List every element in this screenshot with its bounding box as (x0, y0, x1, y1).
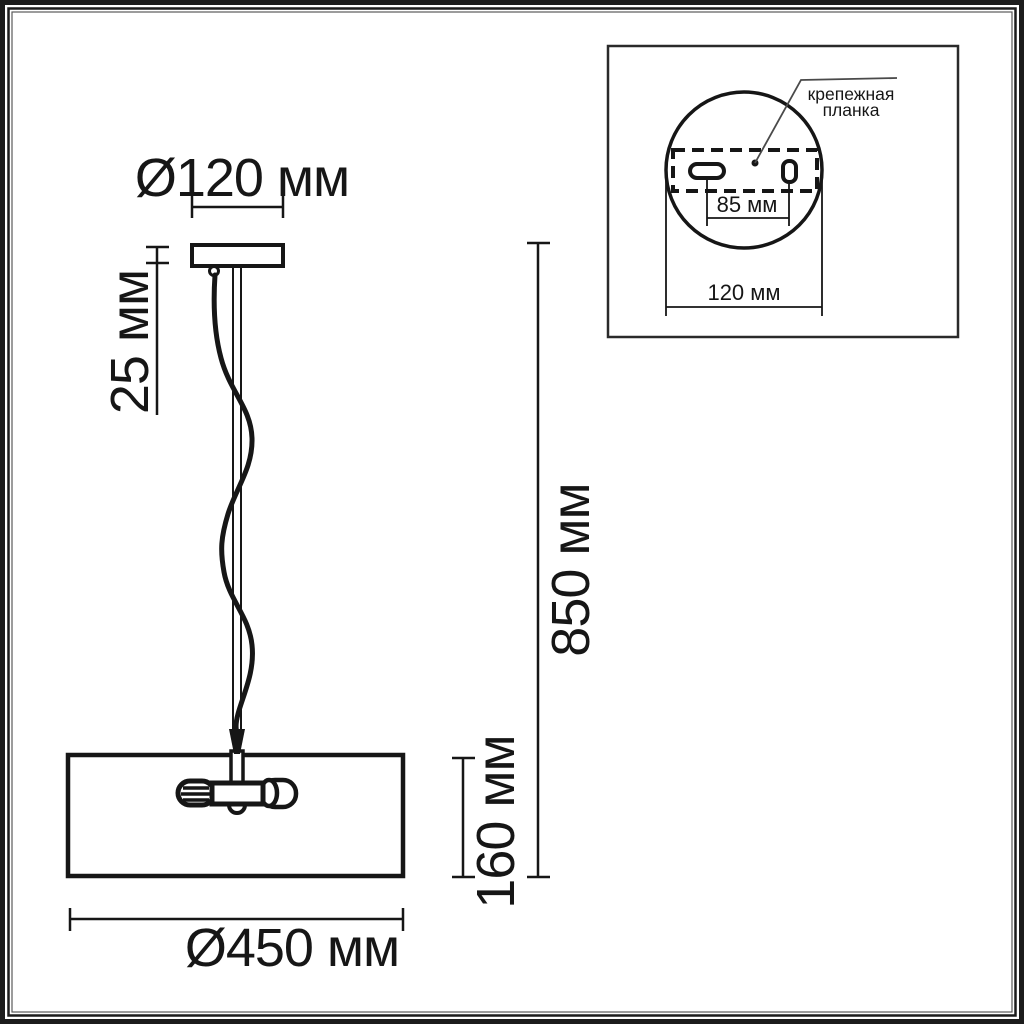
socket-stem (231, 751, 243, 785)
mounting-slot-left (690, 164, 724, 178)
dimension-canopy-diameter: Ø120 мм (135, 148, 349, 218)
overall-height-label: 850 мм (541, 483, 601, 656)
hole-spacing-label: 85 мм (717, 192, 778, 217)
canopy-diameter-label: Ø120 мм (135, 148, 349, 208)
dimension-canopy-height: 25 мм (100, 247, 169, 415)
plate-diameter-label: 120 мм (707, 280, 780, 305)
mounting-slot-right (783, 161, 796, 182)
shade-diameter-label: Ø450 мм (185, 918, 399, 978)
shade-height-label: 160 мм (466, 735, 526, 908)
inset-panel: крепежная планка 85 мм 120 мм (608, 46, 958, 337)
pendant-lamp-technical-drawing: Ø120 мм 25 мм (0, 0, 1024, 1024)
socket-body (212, 783, 263, 804)
canopy-height-label: 25 мм (100, 270, 160, 414)
ceiling-canopy (192, 245, 283, 266)
callout-label-line2: планка (823, 100, 880, 120)
